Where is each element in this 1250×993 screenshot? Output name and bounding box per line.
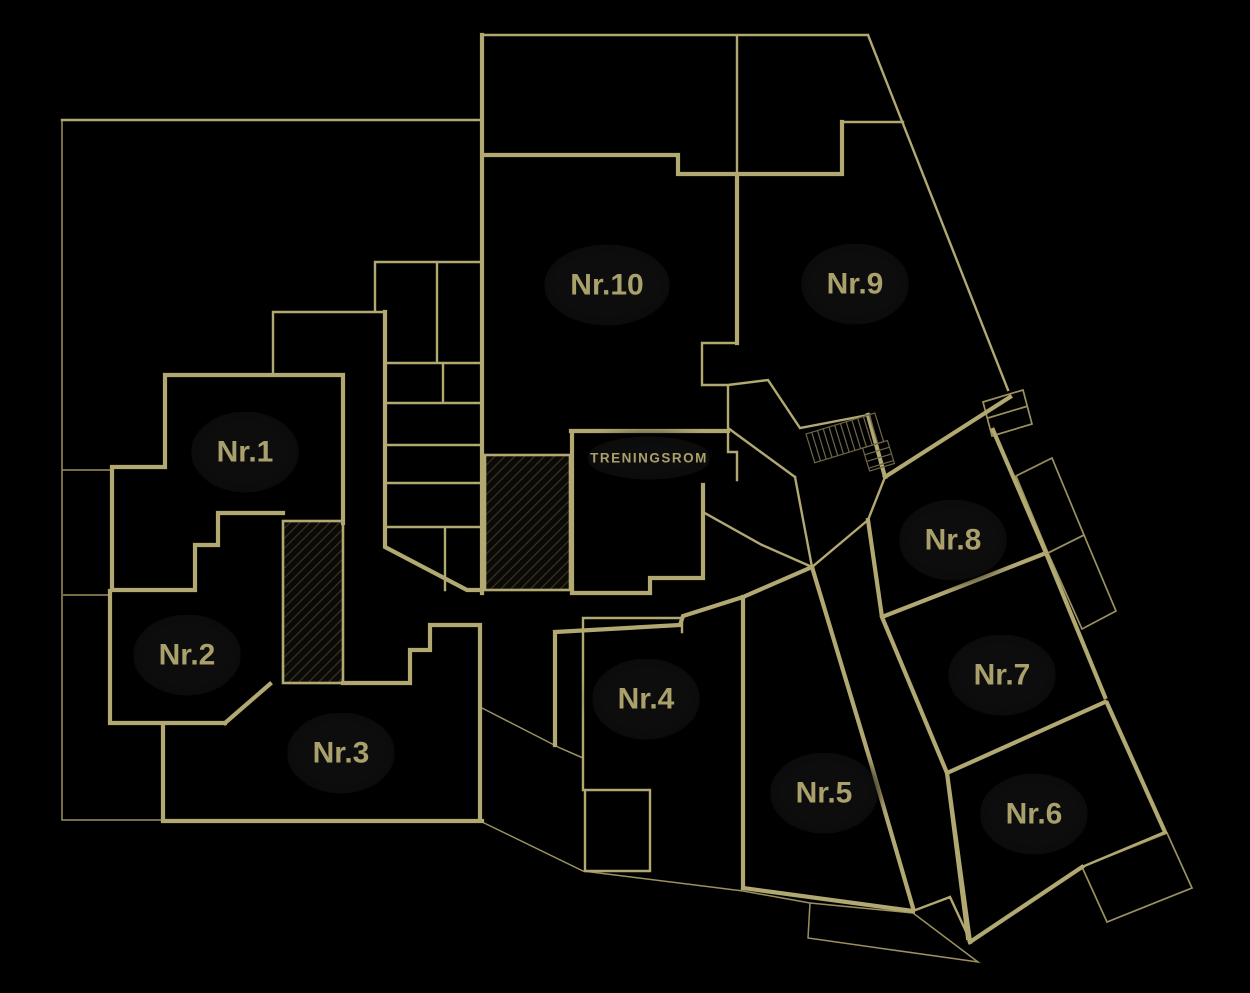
floor-plan-svg: Nr.1Nr.2Nr.3Nr.4Nr.5Nr.6Nr.7Nr.8Nr.9Nr.1…	[0, 0, 1250, 993]
label-nr-1: Nr.1	[217, 436, 274, 469]
label-nr-9: Nr.9	[827, 268, 884, 301]
label-nr-5: Nr.5	[796, 777, 853, 810]
label-nr-4: Nr.4	[618, 683, 675, 716]
label-nr-3: Nr.3	[313, 737, 370, 770]
label-nr-8: Nr.8	[925, 524, 982, 557]
floor-plan-page: Nr.1Nr.2Nr.3Nr.4Nr.5Nr.6Nr.7Nr.8Nr.9Nr.1…	[0, 0, 1250, 993]
label-nr-6: Nr.6	[1006, 798, 1063, 831]
label-nr-2: Nr.2	[159, 639, 216, 672]
label-treningsrom: TRENINGSROM	[590, 451, 708, 466]
shaft-hatch-left	[283, 521, 343, 683]
shaft-hatch-center	[485, 455, 570, 590]
label-nr-7: Nr.7	[974, 659, 1031, 692]
label-nr-10: Nr.10	[570, 269, 643, 302]
